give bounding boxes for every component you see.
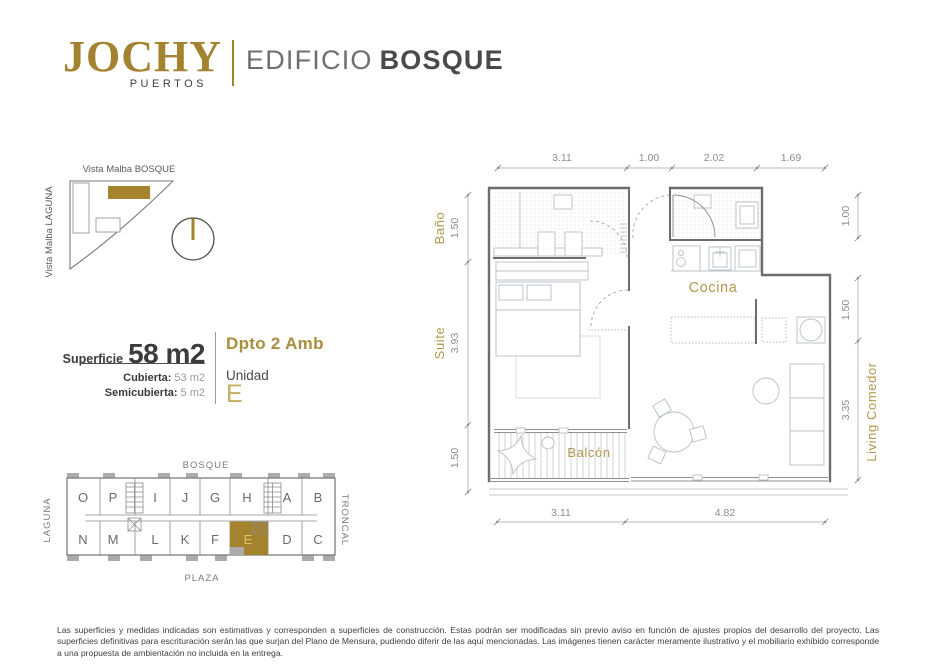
semicubierta-row: Semicubierta:5 m2 [57,387,205,399]
keyplan-label-laguna: LAGUNA [42,497,53,542]
semicubierta-label: Semicubierta: [105,387,178,399]
keyplan-unit-N: N [78,532,87,547]
keyplan-label-bosque: BOSQUE [183,460,230,471]
siteplan-building-a [73,183,89,233]
keyplan-unit-H: H [242,490,251,505]
dim-bottom-2: 4.82 [715,507,736,519]
siteplan-building-b [96,218,120,232]
unit-info: Superficie58 m2 Cubierta:53 m2 Semicubie… [57,330,377,410]
dim-top-1: 3.11 [552,152,572,164]
dim-top-4: 1.69 [781,152,802,164]
cubierta-label: Cubierta: [123,372,171,384]
unidad-value: E [226,380,243,409]
suite-furniture [496,262,626,398]
superficie-rule [80,363,205,364]
building-name-edificio: EDIFICIO [246,45,373,75]
keyplan: BOSQUE PLAZA LAGUNA TRONCAL [40,455,350,590]
dim-left-2: 3.93 [449,333,461,354]
semicubierta-value: 5 m2 [181,387,205,399]
keyplan-unit-I: I [153,490,157,505]
logo-divider [232,40,234,86]
dim-right-3: 3.35 [840,400,852,421]
floorplan: 3.11 1.00 2.02 1.69 3.11 4.82 1.50 3.93 … [430,140,905,560]
dim-right-2: 1.50 [840,300,852,321]
disclaimer-text: Las superficies y medidas indicadas son … [57,625,879,660]
room-label-living: Living Comedor [864,362,879,462]
room-label-cocina: Cocina [689,280,738,296]
living-furniture [648,364,824,465]
siteplan-top-label: Vista Malba BOSQUE [83,164,176,175]
flyer: JOCHY PUERTOS EDIFICIOBOSQUE Vista Malba… [0,0,935,670]
keyplan-unit-K: K [181,532,190,547]
dim-top-2: 1.00 [639,152,660,164]
keyplan-unit-L: L [151,532,158,547]
dim-left-3: 1.50 [449,448,461,469]
keyplan-unit-G: G [210,490,220,505]
building-name: EDIFICIOBOSQUE [246,45,504,76]
keyplan-unit-E: E [244,532,253,547]
brand-logo: JOCHY PUERTOS [63,34,209,90]
cubierta-row: Cubierta:53 m2 [57,372,205,384]
siteplan-left-label: Vista Malba LAGUNA [44,186,55,278]
building-name-bosque: BOSQUE [380,45,504,75]
unit-type: Dpto 2 Amb [226,334,324,354]
dim-top-3: 2.02 [704,152,725,164]
room-label-suite: Suite [432,327,447,360]
keyplan-label-plaza: PLAZA [184,573,219,584]
room-label-balcon: Balcón [567,445,610,460]
logo-text: JOCHY [63,34,209,80]
superficie-row: Superficie58 m2 [57,338,205,370]
keyplan-unit-C: C [313,532,322,547]
info-divider [215,332,216,404]
keyplan-unit-J: J [182,490,189,505]
keyplan-unit-A: A [283,490,292,505]
room-label-bano: Baño [432,212,447,245]
keyplan-unit-M: M [108,532,119,547]
keyplan-unit-F: F [211,532,219,547]
dim-left-1: 1.50 [449,218,461,239]
dim-right-1: 1.00 [840,206,852,227]
compass-icon [172,218,214,260]
keyplan-unit-O: O [78,490,88,505]
keyplan-unit-P: P [109,490,118,505]
dim-bottom-1: 3.11 [551,507,571,519]
superficie-value: 58 m2 [128,338,205,369]
keyplan-label-troncal: TRONCAL [339,494,350,546]
siteplan-building-highlight [108,186,150,199]
keyplan-unit-D: D [282,532,291,547]
siteplan: Vista Malba BOSQUE Vista Malba LAGUNA [40,155,270,290]
cubierta-value: 53 m2 [174,372,205,384]
keyplan-unit-B: B [314,490,323,505]
